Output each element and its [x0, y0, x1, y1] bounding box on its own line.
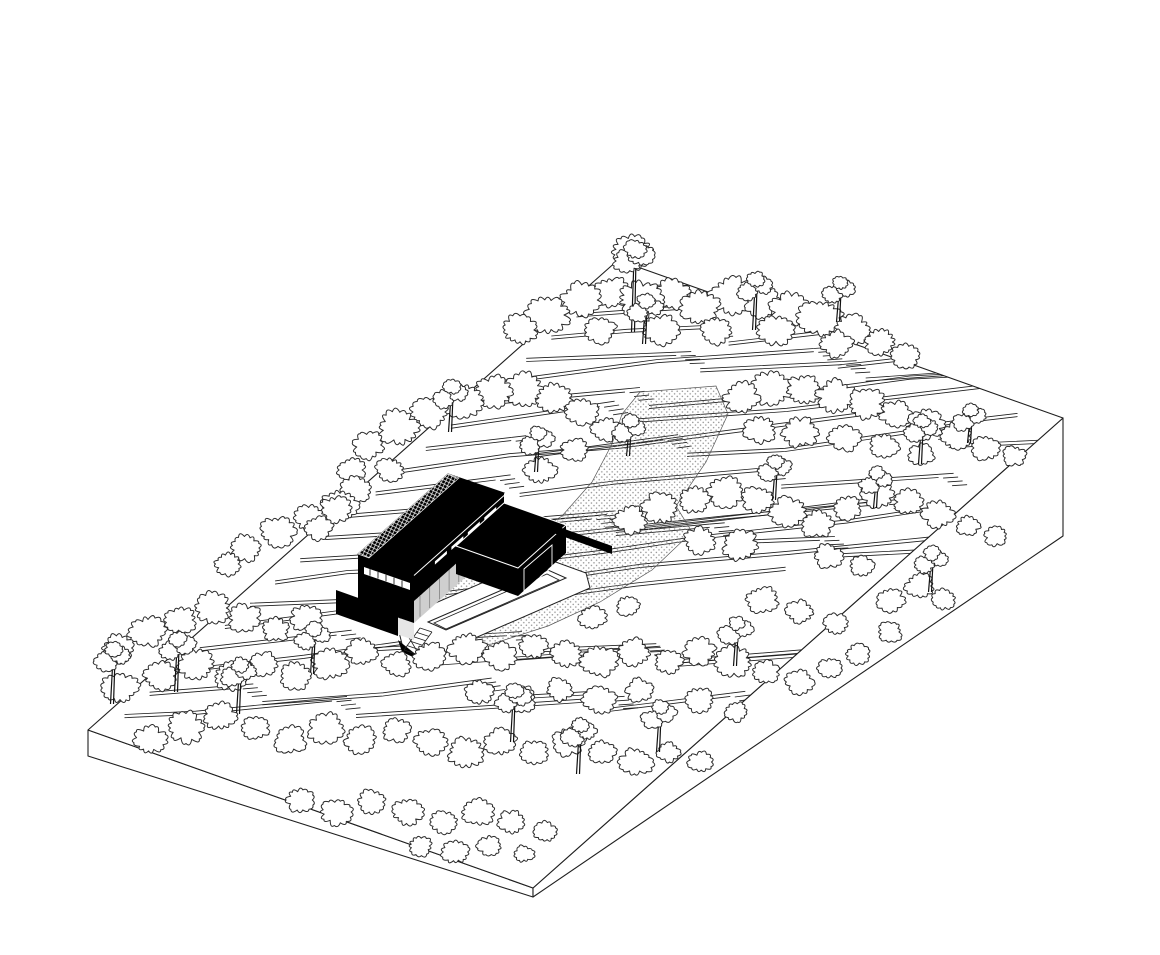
- tree-canopy: [833, 276, 848, 289]
- site-axonometric-diagram: [0, 0, 1160, 955]
- tree-canopy: [622, 413, 639, 428]
- tree-canopy: [164, 607, 197, 634]
- tree-canopy: [285, 788, 314, 813]
- tree-canopy: [352, 431, 384, 460]
- tree-canopy: [505, 683, 524, 698]
- tree-canopy: [195, 591, 230, 625]
- tree-canopy: [879, 622, 902, 643]
- tree-canopy: [260, 517, 297, 549]
- tree-canopy: [637, 293, 656, 309]
- architectural-site-diagram: [0, 0, 1160, 955]
